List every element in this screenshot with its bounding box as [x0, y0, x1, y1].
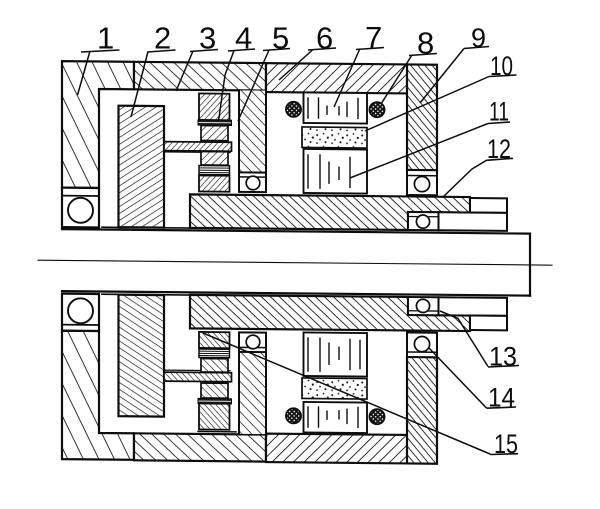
- svg-text:7: 7: [365, 20, 382, 55]
- svg-text:6: 6: [316, 21, 333, 56]
